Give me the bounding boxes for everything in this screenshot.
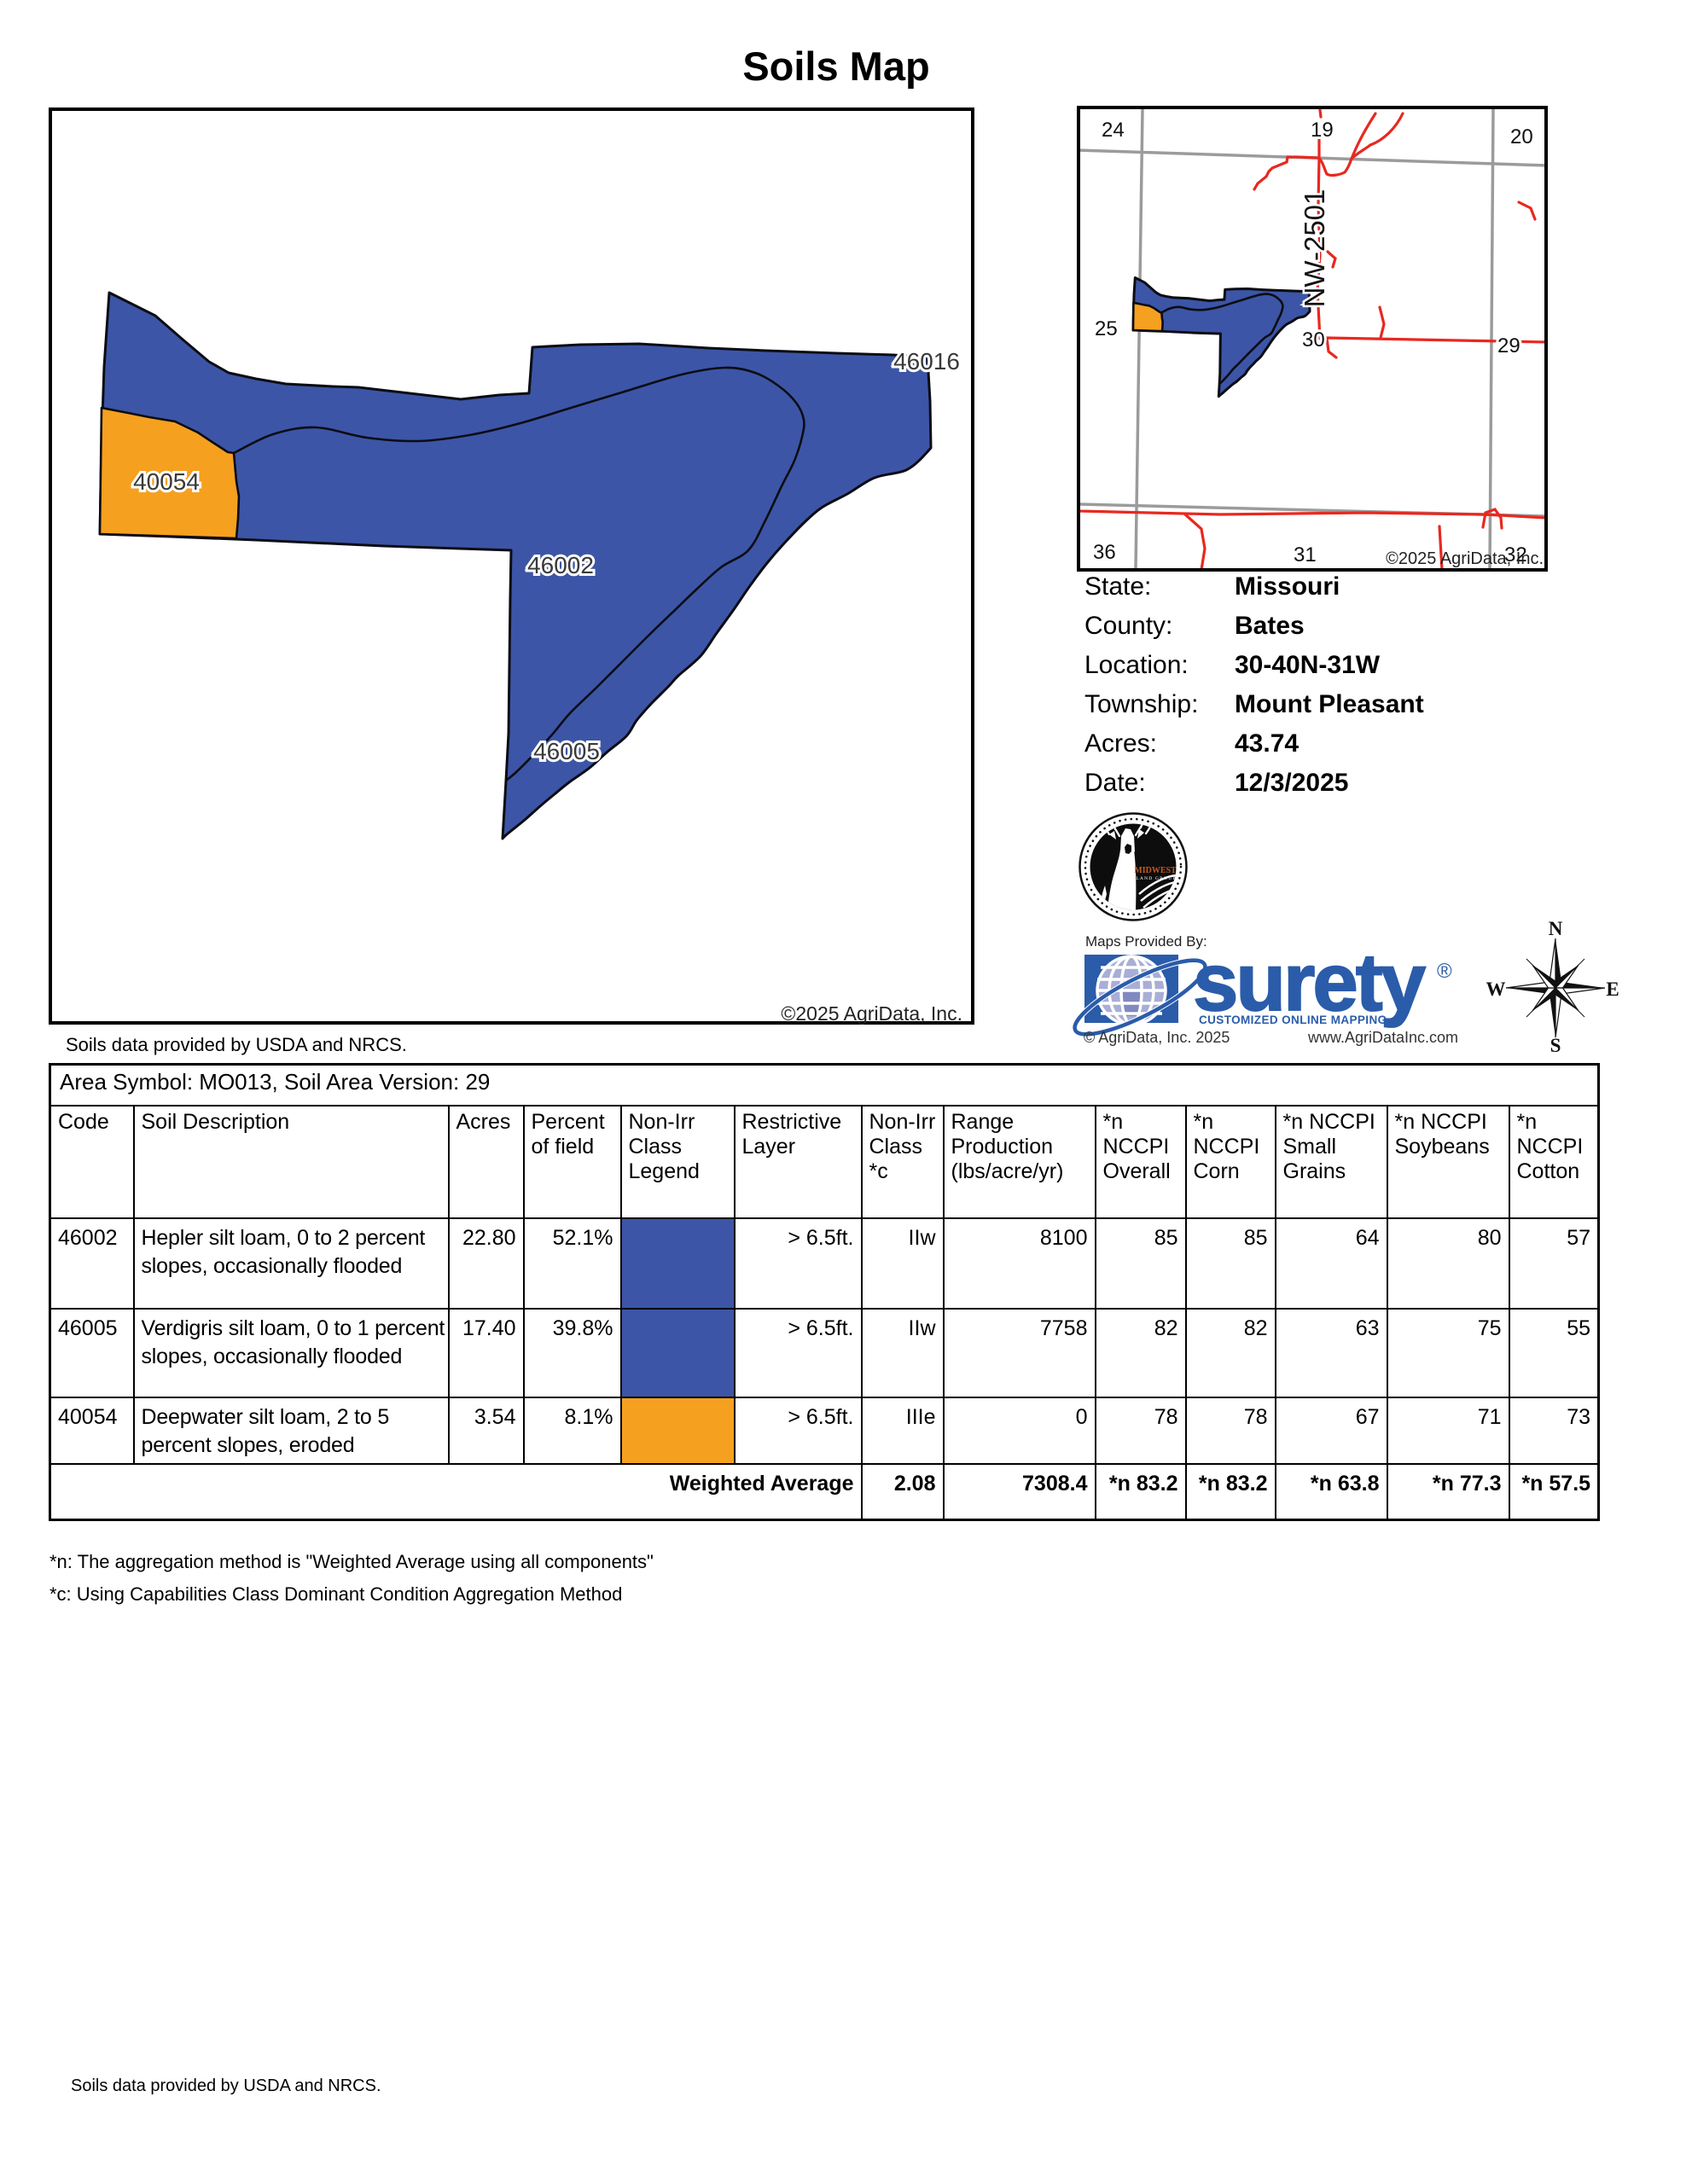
svg-text:©2025 AgriData, Inc.: ©2025 AgriData, Inc. xyxy=(781,1002,962,1025)
svg-text:N: N xyxy=(1549,918,1563,939)
svg-text:MIDWEST: MIDWEST xyxy=(1134,866,1177,875)
svg-text:E: E xyxy=(1606,979,1619,1000)
svg-text:24: 24 xyxy=(1102,119,1125,142)
svg-text:NW-2501: NW-2501 xyxy=(1299,189,1330,308)
svg-text:30: 30 xyxy=(1302,328,1325,351)
svg-text:®: ® xyxy=(1437,960,1452,983)
svg-text:CUSTOMIZED ONLINE MAPPING: CUSTOMIZED ONLINE MAPPING xyxy=(1199,1014,1387,1026)
svg-text:LAND GROUP: LAND GROUP xyxy=(1136,876,1176,881)
svg-text:31: 31 xyxy=(1294,543,1317,566)
svg-text:©2025 AgriData, Inc.: ©2025 AgriData, Inc. xyxy=(1386,549,1544,568)
svg-text:19: 19 xyxy=(1311,119,1334,142)
svg-text:40054: 40054 xyxy=(133,468,200,495)
svg-text:36: 36 xyxy=(1093,541,1116,564)
svg-text:S: S xyxy=(1550,1035,1561,1056)
svg-text:© AgriData, Inc. 2025: © AgriData, Inc. 2025 xyxy=(1084,1029,1230,1046)
svg-text:46002: 46002 xyxy=(527,552,594,578)
svg-text:46016: 46016 xyxy=(893,348,960,375)
svg-text:29: 29 xyxy=(1497,334,1520,357)
svg-text:25: 25 xyxy=(1095,317,1118,340)
svg-text:46005: 46005 xyxy=(533,738,600,764)
svg-text:20: 20 xyxy=(1510,125,1533,148)
svg-text:W: W xyxy=(1486,979,1506,1000)
svg-text:www.AgriDataInc.com: www.AgriDataInc.com xyxy=(1307,1029,1458,1046)
